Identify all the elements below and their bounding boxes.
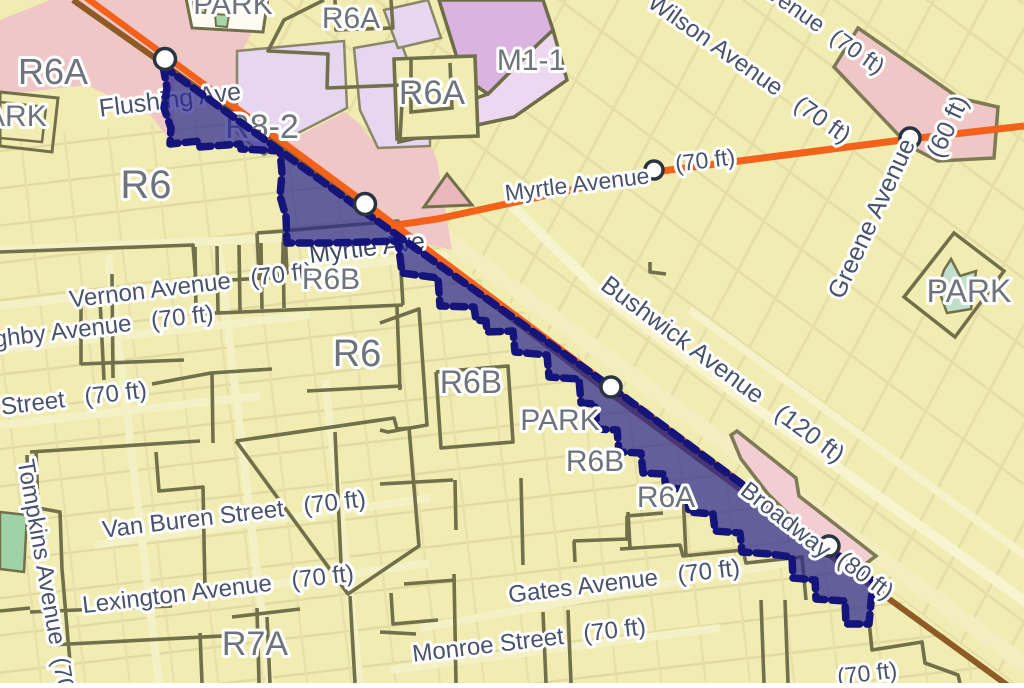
svg-text:R6A: R6A [322, 2, 380, 35]
svg-text:PARK: PARK [520, 404, 599, 437]
svg-text:R6B: R6B [302, 263, 360, 296]
svg-text:R6B: R6B [566, 445, 624, 478]
svg-text:R6B: R6B [440, 364, 502, 400]
svg-text:R6A: R6A [18, 51, 88, 92]
svg-text:R6: R6 [120, 163, 171, 207]
svg-text:M1-1: M1-1 [497, 44, 565, 77]
svg-text:PARK: PARK [0, 100, 47, 133]
svg-text:R6: R6 [333, 333, 382, 375]
svg-text:PARK: PARK [193, 0, 272, 21]
svg-text:R6A: R6A [637, 481, 695, 514]
svg-text:R7A: R7A [222, 625, 288, 663]
svg-text:R6A: R6A [399, 74, 465, 112]
svg-text:PARK: PARK [927, 273, 1012, 309]
